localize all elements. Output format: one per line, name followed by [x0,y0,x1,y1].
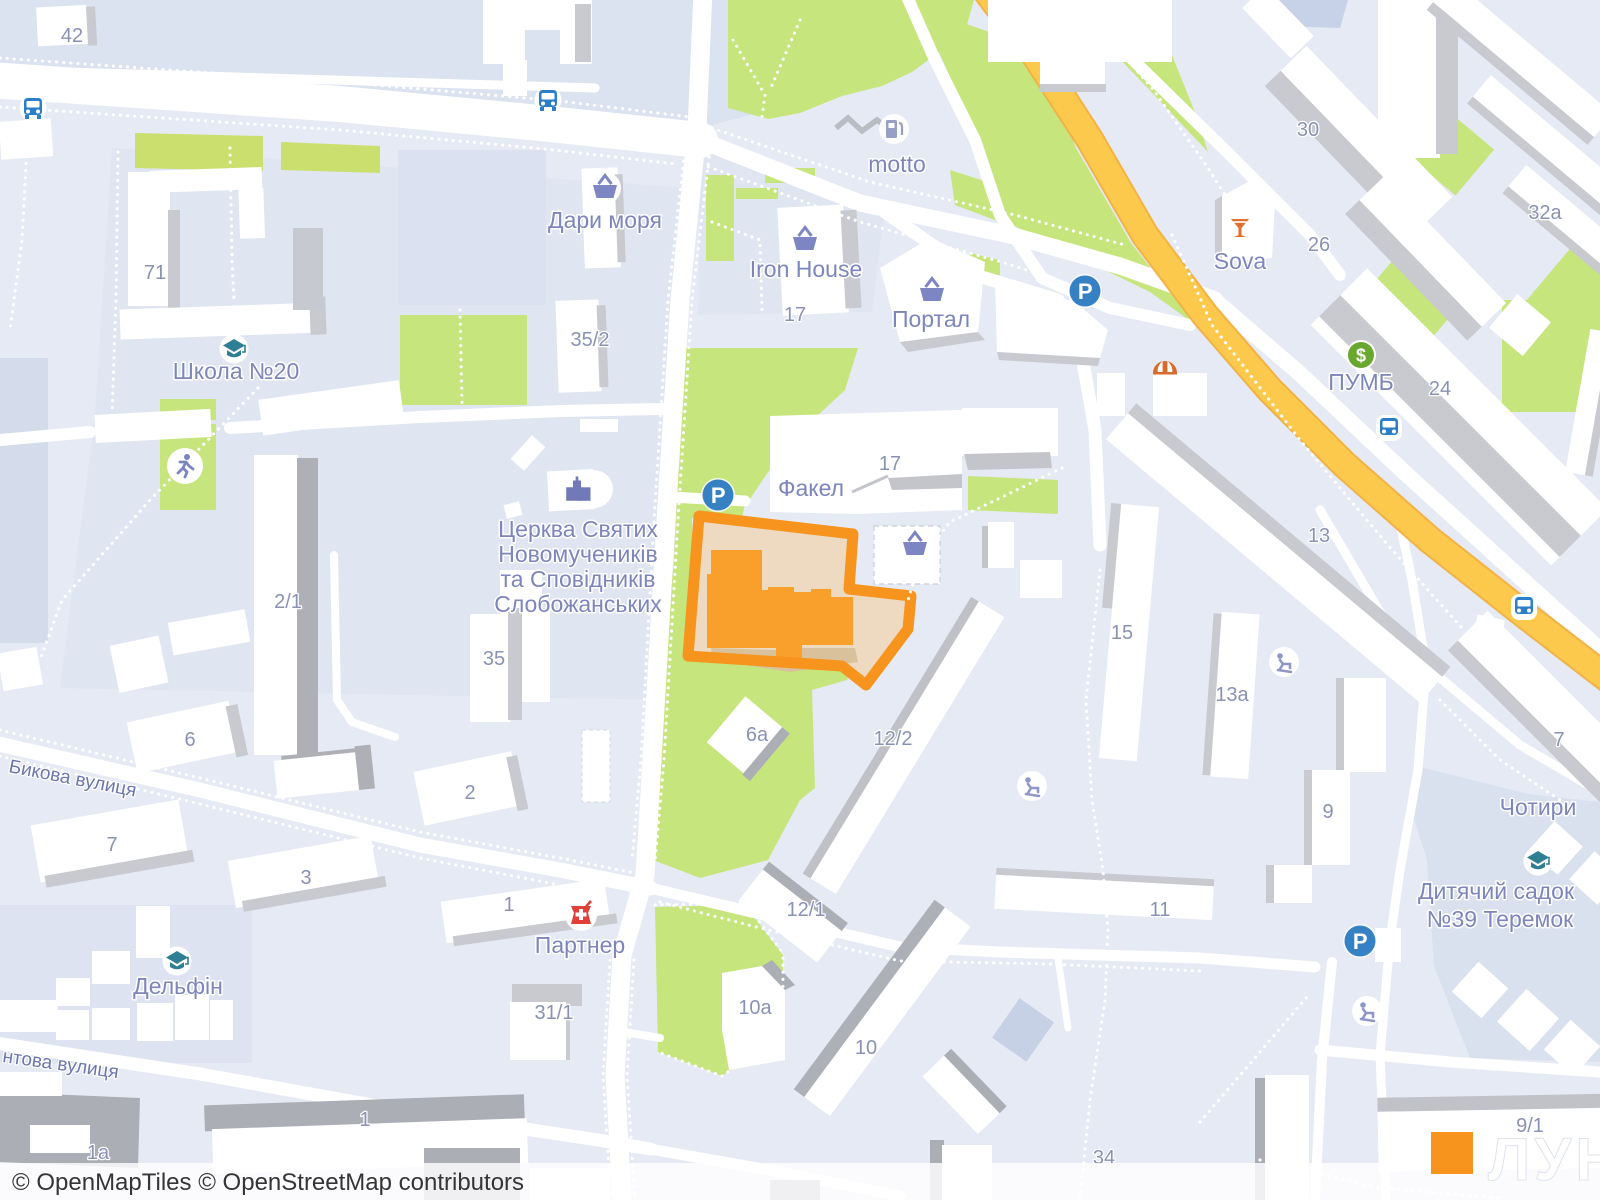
svg-text:42: 42 [61,25,83,47]
svg-text:та Сповідників: та Сповідників [500,566,655,592]
svg-text:1a: 1a [87,1142,110,1164]
svg-text:Факел: Факел [778,475,844,501]
svg-text:7: 7 [1553,729,1564,751]
svg-text:12/2: 12/2 [874,728,913,750]
svg-text:1: 1 [359,1109,370,1131]
svg-text:7: 7 [106,834,117,856]
svg-text:Чотири: Чотири [1500,794,1577,820]
svg-text:2/1: 2/1 [274,591,302,613]
svg-text:26: 26 [1308,234,1330,256]
svg-text:9: 9 [1322,801,1333,823]
svg-text:10: 10 [855,1037,877,1059]
svg-text:17: 17 [879,453,901,475]
svg-text:11: 11 [1150,899,1171,921]
svg-text:Портал: Портал [892,306,970,332]
svg-text:17: 17 [784,304,806,326]
svg-text:Школа №20: Школа №20 [173,358,300,384]
svg-text:Sova: Sova [1214,248,1267,274]
svg-text:2: 2 [464,782,475,804]
svg-text:Iron House: Iron House [750,256,863,282]
svg-text:Слобожанських: Слобожанських [494,591,662,617]
svg-text:71: 71 [144,262,166,284]
svg-text:Дитячий садок: Дитячий садок [1418,878,1575,904]
svg-text:15: 15 [1111,622,1133,644]
svg-text:Партнер: Партнер [535,932,625,958]
svg-text:Церква Святих: Церква Святих [498,516,658,542]
svg-text:© OpenMapTiles © OpenStreetMap: © OpenMapTiles © OpenStreetMap contribut… [12,1169,524,1196]
svg-text:$: $ [1356,346,1366,366]
svg-text:10a: 10a [738,997,772,1019]
svg-text:31/1: 31/1 [535,1002,574,1024]
svg-text:35: 35 [483,648,505,670]
svg-text:3: 3 [300,867,311,889]
svg-text:13: 13 [1308,525,1330,547]
svg-text:№39 Теремок: №39 Теремок [1427,906,1574,932]
svg-text:12/1: 12/1 [787,899,826,921]
svg-text:ЛУН: ЛУН [1488,1126,1600,1193]
svg-text:Новомучеників: Новомучеників [498,541,657,567]
svg-text:Дельфін: Дельфін [133,973,223,999]
svg-text:Дари моря: Дари моря [548,207,662,233]
svg-text:13a: 13a [1215,684,1249,706]
svg-text:30: 30 [1297,119,1319,141]
svg-text:32a: 32a [1528,202,1562,224]
svg-text:6: 6 [184,729,195,751]
svg-text:1: 1 [503,894,514,916]
svg-text:35/2: 35/2 [571,329,610,351]
svg-text:24: 24 [1429,378,1451,400]
svg-text:6a: 6a [746,724,769,746]
svg-text:ПУМБ: ПУМБ [1328,369,1393,395]
svg-text:motto: motto [868,151,926,177]
